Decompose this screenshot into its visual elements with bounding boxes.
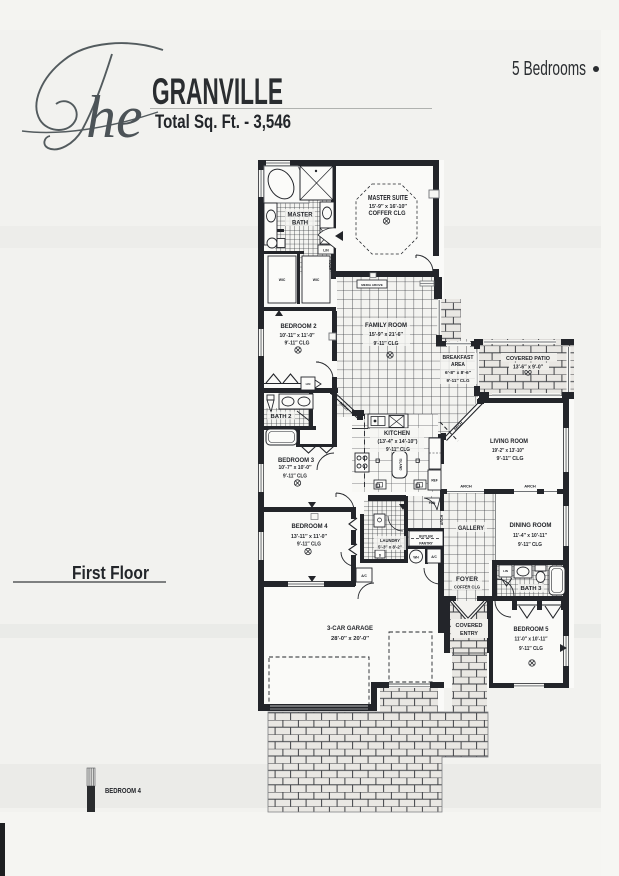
svg-text:DINING ROOM: DINING ROOM	[510, 522, 552, 529]
svg-text:11′-4″ x 10′-11″: 11′-4″ x 10′-11″	[513, 533, 547, 539]
svg-text:6′-8″ x 8′-6″: 6′-8″ x 8′-6″	[445, 370, 472, 376]
svg-text:WH: WH	[413, 556, 419, 560]
svg-text:BATH 3: BATH 3	[521, 586, 542, 592]
svg-text:FAMILY ROOM: FAMILY ROOM	[365, 322, 407, 329]
svg-text:REF: REF	[431, 479, 437, 483]
svg-text:15′-9″ x 16′-10″: 15′-9″ x 16′-10″	[369, 204, 407, 210]
svg-text:LIN: LIN	[503, 569, 508, 573]
svg-text:BEDROOM 5: BEDROOM 5	[514, 626, 550, 633]
svg-text:10′-11″ x 11′-0″: 10′-11″ x 11′-0″	[280, 333, 315, 339]
svg-text:MASTER SUITE: MASTER SUITE	[368, 195, 408, 202]
svg-text:ISLAND: ISLAND	[399, 459, 403, 472]
svg-text:11′-0″ x 10′-11″: 11′-0″ x 10′-11″	[515, 637, 548, 643]
svg-text:A/C: A/C	[431, 555, 437, 559]
svg-text:BEDROOM 2: BEDROOM 2	[281, 323, 317, 330]
svg-text:9′-11″ CLG: 9′-11″ CLG	[297, 542, 321, 548]
svg-text:13′-6″ x 9′-0″: 13′-6″ x 9′-0″	[513, 365, 544, 371]
svg-text:COVERED PATIO: COVERED PATIO	[506, 356, 550, 362]
svg-text:COFFER CLG: COFFER CLG	[454, 585, 481, 590]
svg-text:LIN: LIN	[323, 249, 329, 253]
svg-text:WIC: WIC	[313, 278, 320, 282]
svg-text:19′-2″ x 13′-10″: 19′-2″ x 13′-10″	[492, 448, 524, 454]
svg-text:13′-11″ x 11′-0″: 13′-11″ x 11′-0″	[291, 534, 327, 540]
svg-text:GRANVILLE: GRANVILLE	[152, 71, 283, 112]
svg-text:Total Sq. Ft. - 3,546: Total Sq. Ft. - 3,546	[155, 112, 291, 133]
svg-text:PAN: PAN	[429, 501, 436, 505]
svg-text:28′-0″ x 20′-0″: 28′-0″ x 20′-0″	[331, 636, 369, 642]
svg-text:BEDROOM 4: BEDROOM 4	[292, 523, 328, 530]
svg-text:ARCH: ARCH	[329, 259, 333, 270]
svg-text:ENTRY: ENTRY	[460, 631, 478, 637]
svg-text:9′-11″ CLG: 9′-11″ CLG	[497, 456, 524, 462]
svg-text:ARCH: ARCH	[460, 484, 472, 489]
svg-text:9′-11″ CLG: 9′-11″ CLG	[285, 341, 310, 347]
svg-text:ARCH: ARCH	[440, 514, 444, 525]
svg-text:ARCH: ARCH	[524, 484, 536, 489]
svg-text:9′-11″ CLG: 9′-11″ CLG	[283, 474, 307, 480]
svg-text:BATH: BATH	[292, 221, 308, 227]
svg-text:BUTLER: BUTLER	[419, 535, 433, 539]
svg-text:LIVING ROOM: LIVING ROOM	[490, 438, 528, 445]
svg-text:5′-3″ x 8′-2″: 5′-3″ x 8′-2″	[378, 545, 403, 550]
svg-text:9′-11″ CLG: 9′-11″ CLG	[386, 447, 410, 453]
svg-text:LIN: LIN	[306, 382, 311, 386]
svg-text:BEDROOM 3: BEDROOM 3	[278, 457, 314, 464]
svg-text:BATH 2: BATH 2	[271, 414, 292, 420]
svg-text:COVERED: COVERED	[456, 623, 483, 629]
svg-text:3-CAR GARAGE: 3-CAR GARAGE	[327, 625, 374, 632]
svg-text:KITCHEN: KITCHEN	[384, 430, 411, 437]
svg-text:GALLERY: GALLERY	[458, 525, 484, 532]
svg-text:9′-11″ CLG: 9′-11″ CLG	[519, 646, 543, 652]
svg-text:5 Bedrooms: 5 Bedrooms	[512, 58, 586, 80]
svg-text:BEDROOM 4: BEDROOM 4	[105, 788, 141, 795]
svg-text:First Floor: First Floor	[72, 563, 149, 583]
svg-text:(13′-4″ x 14′-10″): (13′-4″ x 14′-10″)	[378, 439, 418, 445]
svg-text:9′-11″ CLG: 9′-11″ CLG	[374, 341, 399, 347]
svg-text:PANTRY: PANTRY	[419, 542, 433, 546]
svg-text:9′-11″ CLG: 9′-11″ CLG	[518, 542, 542, 548]
svg-text:COFFER CLG: COFFER CLG	[369, 211, 406, 217]
svg-text:BREAKFAST: BREAKFAST	[443, 355, 475, 361]
svg-text:LAUNDRY: LAUNDRY	[380, 538, 400, 543]
svg-text:15′-9″ x 21′-6″: 15′-9″ x 21′-6″	[369, 332, 403, 338]
svg-text:WIC: WIC	[279, 278, 286, 282]
svg-text:FOYER: FOYER	[456, 576, 479, 583]
svg-text:MEDIA ABOVE: MEDIA ABOVE	[361, 283, 383, 287]
svg-text:9′-11″ CLG: 9′-11″ CLG	[447, 378, 470, 384]
svg-text:A/C: A/C	[361, 574, 367, 578]
svg-text:MASTER: MASTER	[288, 213, 314, 219]
svg-text:he: he	[86, 84, 143, 150]
svg-text:AREA: AREA	[451, 362, 465, 368]
svg-text:10′-7″ x 10′-0″: 10′-7″ x 10′-0″	[279, 465, 312, 471]
